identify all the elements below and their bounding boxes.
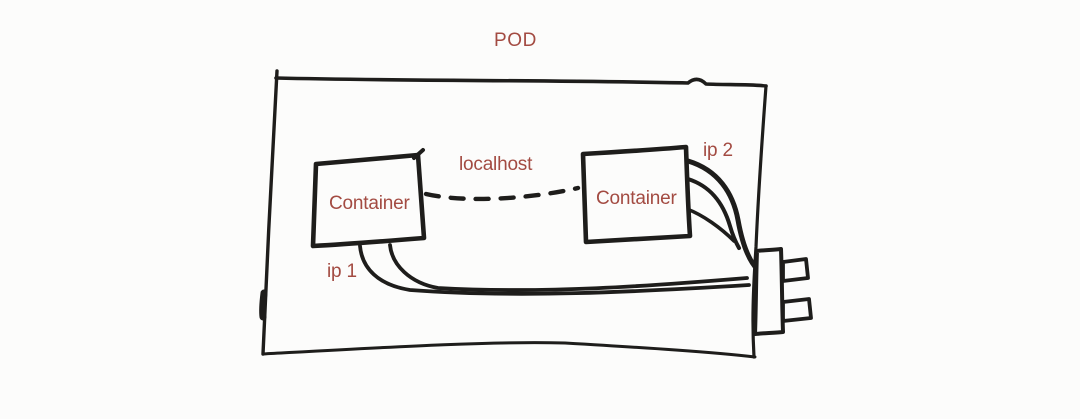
ip1-label: ip 1 — [327, 261, 357, 282]
localhost-label: localhost — [459, 154, 533, 175]
pod-sketch-diagram: POD localhost Container Container ip 1 i… — [0, 0, 1080, 419]
pod-diagram-canvas: POD localhost Container Container ip 1 i… — [0, 0, 1080, 419]
pod-title: POD — [494, 30, 537, 51]
ip2-label: ip 2 — [703, 140, 733, 161]
plug-body — [755, 249, 783, 334]
container-left-label: Container — [329, 193, 410, 214]
diagram-background — [0, 0, 1080, 419]
container-right-label: Container — [596, 188, 677, 209]
plug-prong-bottom — [783, 299, 811, 321]
pod-boundary-ink-blob — [263, 293, 264, 317]
plug-prong-top — [783, 259, 808, 281]
